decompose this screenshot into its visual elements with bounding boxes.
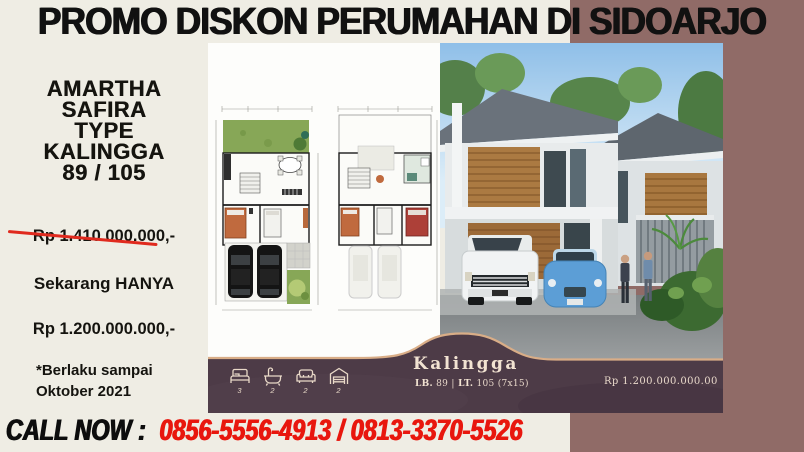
call-banner: CALL NOW : 0856-5556-4913 / 0813-3370-55… xyxy=(6,412,522,450)
listing-banner: 3 2 2 2 Kalingga LB xyxy=(208,328,723,413)
feature-icons-row: 3 2 2 2 xyxy=(226,366,352,400)
sofa-count: 2 xyxy=(292,387,319,395)
promo-panel: AMARTHA SAFIRA TYPE KALINGGA 89 / 105 Rp… xyxy=(0,0,208,452)
heading-line: AMARTHA xyxy=(0,78,208,99)
phone-numbers: 0856-5556-4913 / 0813-3370-5526 xyxy=(159,414,522,447)
floorplan-upper xyxy=(339,115,431,298)
project-heading: AMARTHA SAFIRA TYPE KALINGGA 89 / 105 xyxy=(0,78,208,183)
bathtub-icon xyxy=(262,366,284,386)
feature-bed: 3 xyxy=(226,366,253,400)
now-label: Sekarang HANYA xyxy=(0,274,208,294)
garage-icon xyxy=(328,366,350,386)
heading-line: TYPE xyxy=(0,120,208,141)
heading-line: 89 / 105 xyxy=(0,162,208,183)
bath-count: 2 xyxy=(259,387,286,395)
page-title: PROMO DISKON PERUMAHAN DI SIDOARJO xyxy=(28,1,776,44)
new-price: Rp 1.200.000.000,- xyxy=(0,320,208,339)
car-top-view xyxy=(228,245,253,298)
car-top-view xyxy=(257,245,282,298)
listing-specs: LB. 89 | LT. 105 (7x15) xyxy=(415,379,529,389)
garage-count: 2 xyxy=(325,387,352,395)
bed-icon xyxy=(229,366,251,386)
suv-car xyxy=(462,235,538,305)
banner-price: Rp 1.200.000.000.00 xyxy=(604,376,718,387)
lt-label: LT. xyxy=(455,379,474,389)
sofa-icon xyxy=(295,366,317,386)
bed-count: 3 xyxy=(226,387,253,395)
old-price: Rp 1.410.000.000,- xyxy=(0,227,208,246)
validity-note: *Berlaku sampai Oktober 2021 xyxy=(36,360,153,402)
promo-flyer: PROMO DISKON PERUMAHAN DI SIDOARJO AMART… xyxy=(0,0,804,452)
lb-label: LB. xyxy=(415,379,433,389)
heading-line: SAFIRA xyxy=(0,99,208,120)
heading-line: KALINGGA xyxy=(0,141,208,162)
feature-bath: 2 xyxy=(259,366,286,400)
feature-garage: 2 xyxy=(325,366,352,400)
call-now-label: CALL NOW : xyxy=(6,414,146,447)
floorplan-ground xyxy=(223,120,310,304)
blue-car xyxy=(544,249,606,307)
feature-sofa: 2 xyxy=(292,366,319,400)
listing-name: Kalingga xyxy=(413,354,519,374)
